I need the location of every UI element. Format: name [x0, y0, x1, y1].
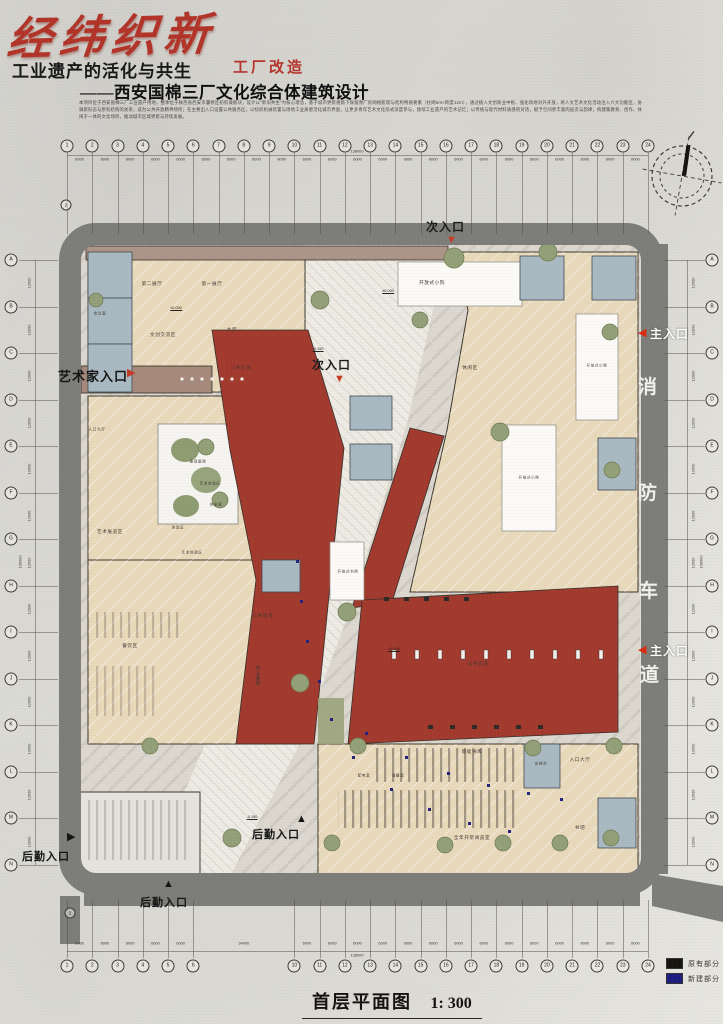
grid-bubble-left: F — [5, 486, 18, 499]
grid-line-left — [19, 446, 58, 447]
grid-line-right — [664, 679, 705, 680]
entrance-label: 次入口 — [426, 218, 465, 235]
grid-bubble-left: D — [5, 393, 18, 406]
grid-bubble-left: E — [5, 440, 18, 453]
grid-line-bottom — [320, 900, 321, 958]
plan-room-label: 艺术体验区 — [200, 482, 221, 487]
plan-room-label: 大厅 — [227, 327, 237, 333]
grid-line-bottom — [395, 900, 396, 958]
bay-dim-bottom: 6000 — [479, 941, 488, 946]
total-dim-line-left — [35, 260, 36, 865]
fire-lane-text: 车 — [639, 576, 658, 603]
plan-room-label: 体验区 — [172, 526, 185, 531]
grid-line-bottom — [294, 900, 295, 958]
grid-bubble-top: 2 — [86, 140, 99, 153]
grid-bubble-top: 3 — [111, 140, 124, 153]
grid-bubble-bottom: 4 — [136, 960, 149, 973]
entrance-label: 次入口 — [312, 356, 351, 373]
grid-line-right — [664, 400, 705, 401]
bay-dim-right: 12000 — [691, 743, 696, 754]
bay-dim-bottom: 6000 — [378, 941, 387, 946]
bay-dim-bottom: 6000 — [303, 941, 312, 946]
grid-bubble-left: M — [5, 812, 18, 825]
legend-swatch-existing — [666, 958, 683, 969]
grid-bubble-top: 9 — [263, 140, 276, 153]
grid-line-top — [193, 153, 194, 234]
legend-item-existing: 原有部分 — [666, 958, 720, 969]
project-tag: 工厂改造 — [233, 56, 305, 77]
grid-line-top — [67, 153, 68, 234]
entrance-arrow-icon: ◀ — [638, 328, 646, 339]
grid-line-left — [19, 539, 58, 540]
grid-line-top — [320, 153, 321, 234]
plan-room-label: 全年开架阅览室 — [454, 835, 490, 841]
grid-bubble-top: 12 — [338, 140, 351, 153]
entrance-arrow-icon: ▲ — [163, 879, 174, 890]
total-dim-top: 138000 — [351, 149, 364, 154]
grid-line-bottom — [118, 900, 119, 958]
fire-lane-text: 道 — [640, 660, 659, 687]
bay-dim-top: 6000 — [404, 157, 413, 162]
level-mark: -0.150 — [313, 347, 324, 352]
plan-room-label: 配电室 — [358, 774, 371, 779]
entrance-label: 主入口 — [650, 642, 689, 659]
grid-bubble-top: 13 — [364, 140, 377, 153]
bay-dim-bottom: 6000 — [581, 941, 590, 946]
grid-line-left — [19, 679, 58, 680]
grid-bubble-top: 19 — [515, 140, 528, 153]
section-mark: 2 — [65, 908, 76, 919]
grid-line-top — [345, 153, 346, 234]
bay-dim-top: 6000 — [328, 157, 337, 162]
grid-line-top — [547, 153, 548, 234]
grid-line-right — [664, 586, 705, 587]
grid-bubble-right: D — [706, 393, 719, 406]
bay-dim-top: 6000 — [252, 157, 261, 162]
entrance-arrow-icon: ▲ — [296, 814, 307, 825]
grid-bubble-bottom: 22 — [591, 960, 604, 973]
grid-line-right — [664, 539, 705, 540]
grid-bubble-left: I — [5, 626, 18, 639]
bay-dim-bottom: 6000 — [101, 941, 110, 946]
grid-bubble-right: I — [706, 626, 719, 639]
grid-line-bottom — [193, 900, 194, 958]
fire-lane-text: 防 — [638, 478, 657, 505]
grid-bubble-top: 22 — [591, 140, 604, 153]
legend-swatch-new — [666, 973, 683, 984]
grid-bubble-left: B — [5, 300, 18, 313]
grid-bubble-top: 18 — [490, 140, 503, 153]
grid-line-bottom — [370, 900, 371, 958]
grid-line-top — [421, 153, 422, 234]
bay-dim-right: 12000 — [691, 790, 696, 801]
bay-dim-top: 6000 — [101, 157, 110, 162]
grid-line-bottom — [471, 900, 472, 958]
plan-room-label: 休息室 — [210, 503, 223, 508]
plan-room-label: 第二展厅 — [142, 281, 163, 287]
legend-label-existing: 原有部分 — [688, 959, 720, 969]
bay-dim-left: 12000 — [27, 743, 32, 754]
total-dim-line-right — [687, 260, 688, 865]
bay-dim-top: 6000 — [505, 157, 514, 162]
grid-line-bottom — [345, 900, 346, 958]
grid-line-left — [19, 260, 58, 261]
grid-bubble-right: C — [706, 347, 719, 360]
grid-line-bottom — [522, 900, 523, 958]
bay-dim-top: 6000 — [530, 157, 539, 162]
level-mark: -0.150 — [247, 815, 258, 820]
bay-dim-bottom: 6000 — [454, 941, 463, 946]
grid-bubble-bottom: 18 — [490, 960, 503, 973]
bay-dim-left: 12000 — [27, 604, 32, 615]
grid-line-bottom — [496, 900, 497, 958]
grid-bubble-right: M — [706, 812, 719, 825]
entrance-label: 后勤入口 — [252, 826, 300, 842]
grid-line-top — [244, 153, 245, 234]
grid-line-left — [19, 307, 58, 308]
grid-bubble-bottom: 11 — [313, 960, 326, 973]
grid-bubble-top: 14 — [389, 140, 402, 153]
landscape-courtyard — [158, 424, 238, 524]
grid-line-left — [19, 586, 58, 587]
grid-bubble-bottom: 2 — [86, 960, 99, 973]
level-mark: ±0.000 — [170, 306, 182, 311]
grid-line-top — [597, 153, 598, 234]
entrance-arrow-icon: ▶ — [127, 368, 135, 379]
grid-bubble-right: J — [706, 672, 719, 685]
grid-line-right — [664, 632, 705, 633]
bay-dim-left: 12000 — [27, 836, 32, 847]
bay-dim-left: 12000 — [27, 650, 32, 661]
grid-line-bottom — [421, 900, 422, 958]
entrance-label: 主入口 — [650, 325, 689, 342]
grid-line-bottom — [547, 900, 548, 958]
bay-dim-right: 12000 — [691, 697, 696, 708]
grid-bubble-bottom: 13 — [364, 960, 377, 973]
grid-bubble-top: 17 — [465, 140, 478, 153]
bay-dim-top: 6000 — [454, 157, 463, 162]
bay-dim-bottom: 6000 — [126, 941, 135, 946]
grid-bubble-right: A — [706, 254, 719, 267]
grid-line-right — [664, 446, 705, 447]
caption-scale: 1: 300 — [430, 995, 471, 1012]
grid-line-bottom — [446, 900, 447, 958]
plan-room-label: 入口大厅 — [88, 428, 106, 433]
grid-line-top — [623, 153, 624, 234]
grid-bubble-left: N — [5, 859, 18, 872]
bay-dim-right: 12000 — [691, 417, 696, 428]
bay-dim-right: 12000 — [691, 324, 696, 335]
grid-line-bottom — [572, 900, 573, 958]
grid-bubble-bottom: 6 — [187, 960, 200, 973]
grid-bubble-top: 21 — [566, 140, 579, 153]
plan-room-label: 公共区域 — [468, 661, 489, 667]
grid-bubble-left: J — [5, 672, 18, 685]
grid-bubble-bottom: 12 — [338, 960, 351, 973]
bay-dim-bottom: 6000 — [176, 941, 185, 946]
total-dim-line-top — [67, 155, 648, 156]
grid-bubble-top: 8 — [237, 140, 250, 153]
bay-dim-left: 12000 — [27, 371, 32, 382]
grid-line-right — [664, 865, 705, 866]
grid-bubble-bottom: 5 — [162, 960, 175, 973]
grid-line-top — [168, 153, 169, 234]
grid-line-top — [219, 153, 220, 234]
grid-line-top — [118, 153, 119, 234]
entrance-arrow-icon: ▼ — [334, 374, 345, 385]
grid-line-bottom — [623, 900, 624, 958]
grid-line-right — [664, 260, 705, 261]
project-description: 本项目位于西安国棉三厂工业遗产用地，整体位于陕西省西安市灞桥区纺织城板块，设计以… — [79, 99, 642, 120]
bay-dim-left: 12000 — [27, 557, 32, 568]
grid-line-right — [664, 818, 705, 819]
grid-bubble-top: 15 — [414, 140, 427, 153]
plan-room-label: 公共区域 — [231, 365, 252, 371]
grid-line-left — [19, 865, 58, 866]
bay-dim-left: 12000 — [27, 324, 32, 335]
grid-line-right — [664, 772, 705, 773]
grid-bubble-right: B — [706, 300, 719, 313]
plan-room-label: 开放式小院 — [419, 280, 445, 286]
grid-bubble-top: 5 — [162, 140, 175, 153]
bay-dim-right: 12000 — [691, 464, 696, 475]
bay-dim-bottom: 6000 — [328, 941, 337, 946]
grid-bubble-bottom: 21 — [566, 960, 579, 973]
plan-room-label: 公共区域 — [253, 613, 274, 619]
grid-line-left — [19, 353, 58, 354]
grid-bubble-right: N — [706, 859, 719, 872]
grid-bubble-right: F — [706, 486, 719, 499]
grid-line-top — [92, 153, 93, 234]
grid-bubble-left: C — [5, 347, 18, 360]
grid-line-top — [471, 153, 472, 234]
grid-bubble-left: K — [5, 719, 18, 732]
bay-dim-bottom: 6000 — [505, 941, 514, 946]
grid-line-top — [572, 153, 573, 234]
bay-dim-top: 6000 — [303, 157, 312, 162]
bay-dim-bottom: 6000 — [429, 941, 438, 946]
bay-dim-right: 12000 — [691, 511, 696, 522]
plan-room-label: 文创交流区 — [150, 332, 176, 338]
grid-bubble-right: H — [706, 579, 719, 592]
plan-room-label: 艺术体验区 — [182, 551, 203, 556]
bay-dim-bottom: 6000 — [530, 941, 539, 946]
grid-line-bottom — [597, 900, 598, 958]
grid-bubble-right: G — [706, 533, 719, 546]
level-mark: ±0.000 — [388, 647, 400, 652]
entrance-label: 艺术家入口 — [58, 366, 128, 385]
bay-dim-left: 12000 — [27, 697, 32, 708]
grid-bubble-top: 1 — [61, 140, 74, 153]
grid-bubble-top: 11 — [313, 140, 326, 153]
plan-room-label: 出纳台 — [535, 762, 548, 767]
bay-dim-right: 12000 — [691, 371, 696, 382]
bay-dim-bottom: 6000 — [151, 941, 160, 946]
grid-line-left — [19, 818, 58, 819]
legend-item-new: 新建部分 — [666, 973, 720, 984]
bay-dim-top: 6000 — [378, 157, 387, 162]
grid-bubble-right: L — [706, 765, 719, 778]
bay-dim-bottom: 6000 — [631, 941, 640, 946]
grid-line-top — [294, 153, 295, 234]
grid-bubble-top: 20 — [540, 140, 553, 153]
legend-label-new: 新建部分 — [688, 974, 720, 984]
bay-dim-bottom-gap: 34000 — [238, 941, 249, 946]
grid-bubble-bottom: 15 — [414, 960, 427, 973]
plan-room-label: 音乐餐吧 — [255, 666, 261, 687]
total-dim-bottom: 138000 — [351, 953, 364, 958]
grid-bubble-top: 4 — [136, 140, 149, 153]
plan-room-label: 开放式书吧 — [338, 570, 359, 575]
grid-bubble-left: H — [5, 579, 18, 592]
grid-line-right — [664, 353, 705, 354]
grid-line-right — [664, 307, 705, 308]
grid-line-top — [522, 153, 523, 234]
entrance-label: 后勤入口 — [22, 848, 70, 864]
total-dim-left: 156000 — [18, 556, 23, 569]
bay-dim-bottom: 6000 — [606, 941, 615, 946]
grid-bubble-bottom: 1 — [61, 960, 74, 973]
grid-bubble-top: 16 — [439, 140, 452, 153]
drawing-caption: 首层平面图 1: 300 — [302, 988, 482, 1019]
bay-dim-top: 6000 — [227, 157, 236, 162]
site-plan-drawing — [0, 0, 723, 1024]
grid-line-right — [664, 725, 705, 726]
grid-bubble-bottom: 24 — [642, 960, 655, 973]
bay-dim-left: 12000 — [27, 278, 32, 289]
total-dim-right: 156000 — [699, 556, 704, 569]
grid-bubble-left: G — [5, 533, 18, 546]
grid-bubble-right: K — [706, 719, 719, 732]
grid-line-top — [143, 153, 144, 234]
grid-line-left — [19, 725, 58, 726]
bay-dim-top: 6000 — [555, 157, 564, 162]
plan-room-label: 开放式小院 — [587, 364, 608, 369]
legend: 原有部分 新建部分 — [666, 958, 720, 988]
bay-dim-left: 12000 — [27, 464, 32, 475]
entrance-arrow-icon: ▶ — [67, 832, 75, 843]
plan-room-label: 储藏室 — [392, 774, 405, 779]
grid-bubble-top: 23 — [616, 140, 629, 153]
plan-room-label: 会议室 — [94, 312, 107, 317]
grid-line-bottom — [92, 900, 93, 958]
grid-line-top — [496, 153, 497, 234]
bay-dim-bottom: 6000 — [555, 941, 564, 946]
bay-dim-top: 6000 — [126, 157, 135, 162]
grid-line-left — [19, 772, 58, 773]
grid-bubble-bottom: 10 — [288, 960, 301, 973]
grid-line-top — [370, 153, 371, 234]
bay-dim-left: 12000 — [27, 511, 32, 522]
plan-room-label: 第一展厅 — [202, 281, 223, 287]
grid-bubble-top: 10 — [288, 140, 301, 153]
grid-bubble-bottom: 17 — [465, 960, 478, 973]
plan-room-label: 景观庭院 — [190, 460, 207, 465]
bay-dim-top: 6000 — [202, 157, 211, 162]
bay-dim-bottom: 6000 — [404, 941, 413, 946]
bay-dim-left: 12000 — [27, 790, 32, 801]
grid-bubble-bottom: 23 — [616, 960, 629, 973]
grid-bubble-left: L — [5, 765, 18, 778]
bay-dim-top: 6000 — [606, 157, 615, 162]
bay-dim-right: 12000 — [691, 604, 696, 615]
grid-line-top — [269, 153, 270, 234]
bay-dim-right: 12000 — [691, 557, 696, 568]
presentation-board: 经纬织新 工业遗产的活化与共生 工厂改造 ——西安国棉三厂文化综合体建筑设计 本… — [0, 0, 723, 1024]
bay-dim-bottom: 6000 — [75, 941, 84, 946]
bay-dim-bottom: 6000 — [353, 941, 362, 946]
bay-dim-top: 6000 — [151, 157, 160, 162]
caption-title: 首层平面图 — [312, 992, 412, 1012]
grid-line-left — [19, 632, 58, 633]
bay-dim-top: 6000 — [277, 157, 286, 162]
grid-bubble-bottom: 20 — [540, 960, 553, 973]
bay-dim-right: 12000 — [691, 278, 696, 289]
bay-dim-top: 6000 — [479, 157, 488, 162]
grid-bubble-bottom: 3 — [111, 960, 124, 973]
entrance-label: 后勤入口 — [140, 894, 188, 910]
bay-dim-top: 6000 — [581, 157, 590, 162]
bay-dim-top: 6000 — [75, 157, 84, 162]
plan-room-label: 餐饮区 — [122, 643, 138, 649]
grid-line-top — [395, 153, 396, 234]
grid-line-right — [664, 493, 705, 494]
bay-dim-top: 6000 — [353, 157, 362, 162]
plan-room-label: 开放式小院 — [519, 476, 540, 481]
total-dim-line-bottom — [67, 951, 648, 952]
section-mark: 2 — [61, 200, 72, 211]
plan-room-label: 艺术展览区 — [97, 529, 123, 535]
entrance-arrow-icon: ▼ — [446, 235, 457, 246]
grid-bubble-left: A — [5, 254, 18, 267]
grid-bubble-bottom: 14 — [389, 960, 402, 973]
grid-bubble-right: E — [706, 440, 719, 453]
plan-room-label: 休闲区 — [462, 365, 478, 371]
plan-room-label: 基础书库 — [462, 749, 483, 755]
grid-line-left — [19, 493, 58, 494]
plan-room-label: 入口大厅 — [570, 757, 591, 763]
grid-line-bottom — [648, 900, 649, 958]
north-compass-icon — [636, 128, 723, 220]
bay-dim-right: 12000 — [691, 836, 696, 847]
grid-bubble-bottom: 16 — [439, 960, 452, 973]
grid-bubble-bottom: 19 — [515, 960, 528, 973]
plan-room-label: 书吧 — [575, 825, 585, 831]
bay-dim-top: 6000 — [429, 157, 438, 162]
grid-bubble-top: 7 — [212, 140, 225, 153]
fire-lane-text: 消 — [638, 372, 657, 399]
grid-line-left — [19, 400, 58, 401]
grid-bubble-top: 6 — [187, 140, 200, 153]
bay-dim-right: 12000 — [691, 650, 696, 661]
bay-dim-left: 12000 — [27, 417, 32, 428]
entrance-arrow-icon: ◀ — [638, 645, 646, 656]
level-mark: ±0.000 — [382, 289, 394, 294]
bay-dim-top: 6000 — [176, 157, 185, 162]
